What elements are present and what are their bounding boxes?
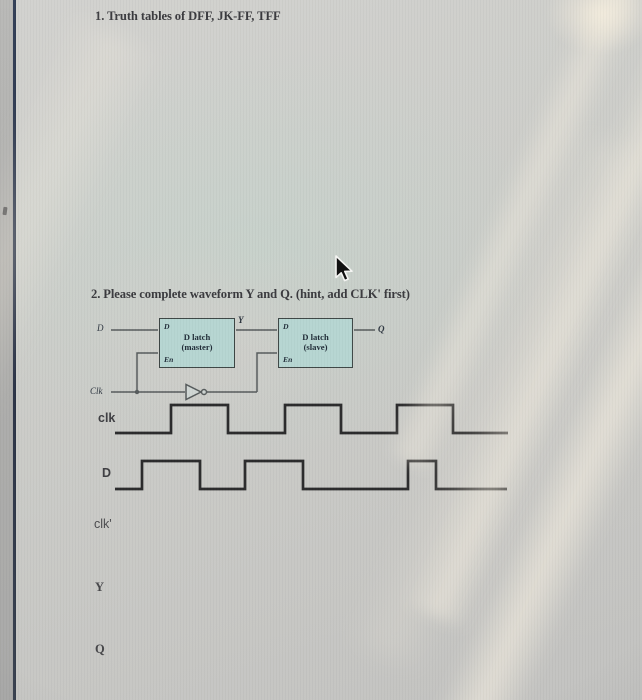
d-waveform-label: D	[102, 466, 111, 480]
d-latch-slave-box: D En D latch (slave)	[278, 318, 353, 368]
master-port-d-label: D	[164, 322, 169, 331]
master-title-line: D latch	[160, 332, 234, 342]
clk-waveform-label: clk	[98, 411, 115, 425]
problem-1-heading: 1. Truth tables of DFF, JK-FF, TFF	[95, 9, 281, 24]
d-input-label: D	[97, 323, 104, 333]
inverter-icon	[186, 385, 201, 400]
d-latch-master-box: D En D latch (master)	[159, 318, 235, 368]
glare-reflection	[345, 127, 642, 673]
slave-box-title: D latch (slave)	[279, 332, 352, 352]
q-row-label: Q	[95, 642, 105, 657]
master-port-en-label: En	[164, 355, 173, 364]
y-wire-label: Y	[238, 315, 244, 325]
master-box-title: D latch (master)	[160, 332, 234, 352]
clk-prime-row-label: clk'	[94, 517, 112, 531]
slave-title-line: D latch	[279, 332, 352, 342]
clk-input-label: Clk	[90, 386, 103, 396]
glare-reflection	[0, 9, 169, 491]
glare-reflection	[402, 0, 642, 631]
inverter-bubble-icon	[202, 390, 207, 395]
glare-reflection	[384, 0, 642, 474]
y-row-label: Y	[95, 580, 104, 595]
wire-master-en	[137, 353, 158, 392]
clk-junction-dot	[135, 390, 139, 394]
mouse-cursor-icon	[334, 255, 356, 285]
waveform-d	[115, 461, 507, 489]
waveform-clk	[115, 405, 508, 433]
slave-subtitle-line: (slave)	[279, 342, 352, 352]
glare-hotspot	[545, 0, 642, 55]
wire-slave-en	[257, 353, 277, 392]
slave-port-d-label: D	[283, 322, 288, 331]
screen-photo: 1. Truth tables of DFF, JK-FF, TFF 2. Pl…	[0, 0, 642, 700]
screen-bezel-strip	[0, 0, 13, 700]
q-output-label: Q	[378, 324, 385, 334]
master-subtitle-line: (master)	[160, 342, 234, 352]
slave-port-en-label: En	[283, 355, 292, 364]
problem-2-heading: 2. Please complete waveform Y and Q. (hi…	[91, 287, 410, 302]
bezel-divider-line	[13, 0, 16, 700]
glare-reflection	[432, 0, 642, 700]
